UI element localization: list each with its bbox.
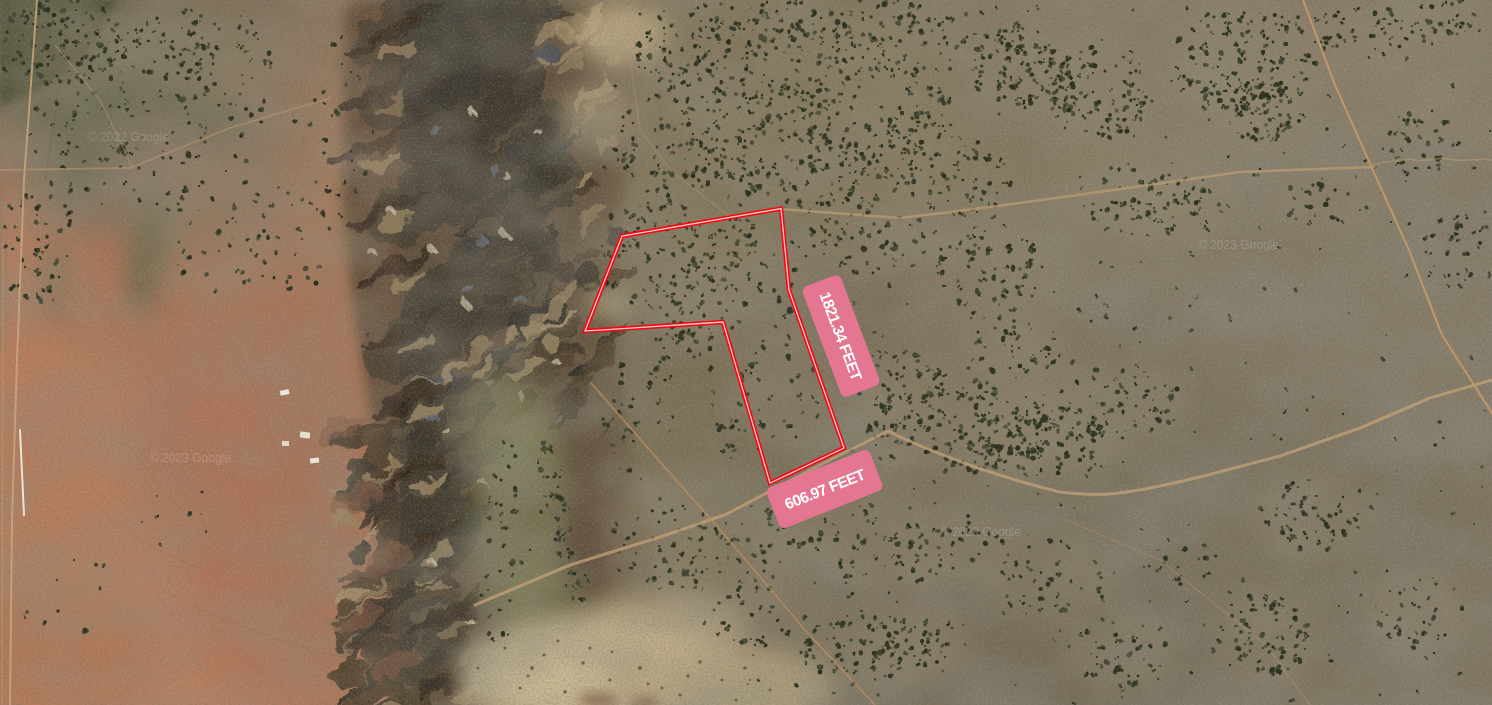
svg-text:© 2023 Google: © 2023 Google (940, 525, 1021, 539)
svg-text:© 2023 Google: © 2023 Google (150, 451, 231, 465)
svg-text:© 2022 Google: © 2022 Google (88, 130, 169, 144)
svg-text:© 2023 Google: © 2023 Google (1198, 238, 1279, 252)
